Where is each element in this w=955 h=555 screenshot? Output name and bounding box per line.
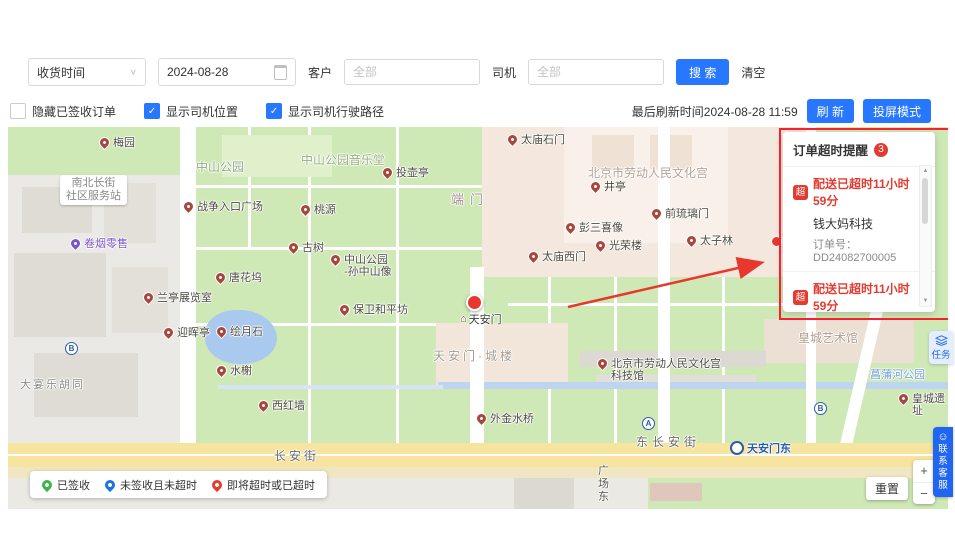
map-poi-label: 前琉璃门 [665,208,709,220]
map-poi: 皇城遗址 [899,393,948,417]
map-pin-icon [564,221,577,234]
map-poi: 唐花坞 [216,272,262,284]
scroll-down-icon[interactable]: ▼ [923,298,929,304]
checkbox-box[interactable]: ✓ [266,103,282,119]
metro-station: 天安门东 [730,440,791,456]
map-poi: 太子林 [687,235,733,247]
filter-checkboxes: 隐藏已签收订单✓显示司机位置✓显示司机行驶路径 [10,103,384,120]
map-poi: 中山公园 -孙中山像 [331,254,392,278]
map-pin-icon [162,326,175,339]
map-area-label: 中山公园 [196,161,244,174]
checkbox-label: 隐藏已签收订单 [32,103,116,120]
map-poi: 投壶亭 [383,167,429,179]
road-letter-badge: B [65,342,78,355]
map-poi-label: 迎晖亭 [177,327,210,339]
map-poi: 卷烟零售 [71,238,128,250]
map-pin-icon [506,133,519,146]
map-poi: 迎晖亭 [164,327,210,339]
map-path [196,247,482,250]
map-pin-icon [685,234,698,247]
order-location-marker[interactable] [466,294,483,311]
date-picker[interactable]: 2024-08-28 [158,58,296,86]
map-poi-label: 北京市劳动人民文化宫 科技馆 [611,358,721,382]
map-area-label: 长安街 [274,450,319,463]
search-toolbar: 收货时间 ∨ 2024-08-28 客户 司机 搜 索 清空 [28,58,765,86]
map-pin-icon [650,207,663,220]
map-poi-label: 太庙石门 [521,134,565,146]
tiananmen-text: 天安门 [469,311,502,327]
map-pin-icon [381,166,394,179]
map-poi: 古树 [289,242,324,254]
legend-item: 未签收且未超时 [105,477,197,493]
map-pin-icon [257,399,270,412]
map-poi: 水榭 [217,365,252,377]
count-badge: 3 [874,143,888,157]
map-area-label: 东长安街 [636,436,700,449]
filter-checkbox[interactable]: ✓显示司机位置 [144,103,238,120]
legend-pin-icon [40,477,54,491]
map-pin-icon [338,303,351,316]
map-river [438,382,948,389]
map-pin-icon [527,250,540,263]
map-poi-label: 桃源 [314,204,336,216]
map-area-label: 北京市劳动人民文化宫 [588,167,708,180]
map-pin-icon [182,200,195,213]
map-poi: 西红墙 [259,400,305,412]
map-poi-label: 梅园 [113,137,135,149]
map-pin-icon [287,241,300,254]
calendar-icon [274,65,287,80]
map-pin-icon [594,239,607,252]
map-pin-icon [214,271,227,284]
refresh-info: 最后刷新时间2024-08-28 11:59 刷 新 投屏模式 [632,99,931,123]
customer-label: 客户 [308,64,332,81]
date-value: 2024-08-28 [167,65,228,79]
landmark-icon: ⌂ [460,313,467,325]
map-poi: 光荣楼 [596,240,642,252]
map-poi: 井亭 [591,181,626,193]
map-block-park-nw [8,127,180,175]
panel-header: 订单超时提醒 3 [783,132,935,167]
map-poi-label: 兰亭展览室 [157,292,212,304]
legend-item: 即将超时或已超时 [212,477,315,493]
map-area-label: 中山公园音乐堂 [301,154,385,167]
legend-label: 即将超时或已超时 [227,477,315,493]
alert-item[interactable]: 超配送已超时11小时59分华润万家（科技园店）2订单号：DD2408270000… [783,272,935,312]
map-pin-icon [69,237,82,250]
map-path [196,185,482,188]
map-area-label: 天安门·城楼 [433,350,515,363]
map-pin-icon [589,180,602,193]
map-poi-label: 西红墙 [272,400,305,412]
legend-pin-icon [210,477,224,491]
map-area-label: 皇城艺术馆 [798,332,858,345]
time-type-select[interactable]: 收货时间 ∨ [28,58,146,86]
map-poi-label: 外金水桥 [490,413,534,425]
legend-label: 已签收 [57,477,90,493]
legend-pin-icon [103,477,117,491]
refresh-button[interactable]: 刷 新 [807,99,854,123]
order-marker-dot[interactable] [771,236,782,247]
map-poi: 外金水桥 [477,413,534,425]
road-letter-badge: B [814,402,827,415]
map-poi-label: 水榭 [230,365,252,377]
map-pin-icon [215,325,228,338]
map-pin-icon [596,357,609,370]
alert-item[interactable]: 超配送已超时11小时59分钱大妈科技订单号：DD24082700005 [783,167,935,272]
task-tab-label: 任务 [931,347,950,361]
alert-list: 超配送已超时11小时59分钱大妈科技订单号：DD24082700005超配送已超… [783,167,935,312]
map-poi-label: 古树 [302,242,324,254]
map-building [592,135,634,169]
map-poi-label: 太庙西门 [542,251,586,263]
map-canvas[interactable]: 梅园战争入口广场桃源投壶亭太庙石门井亭前琉璃门彭三喜像光荣楼太子林太庙西门古树中… [8,127,948,509]
alert-status-text: 配送已超时11小时59分 [813,175,911,209]
map-pin-icon [215,364,228,377]
map-poi-label: 皇城遗址 [912,393,948,417]
checkbox-label: 显示司机行驶路径 [288,103,384,120]
reset-button[interactable]: 重置 [866,477,908,500]
map-poi: 战争入口广场 [184,201,263,213]
customer-service-tab[interactable]: ☺ 联 系 客 服 [933,427,953,497]
zoom-out-button[interactable]: − [913,483,935,505]
panel-title: 订单超时提醒 [793,140,868,159]
overdue-tag-icon: 超 [793,290,808,305]
map-area-label: 广 场 东 [598,465,609,504]
checkbox-box[interactable] [10,103,26,119]
tiananmen-label: ⌂ 天安门 [460,311,502,327]
alert-order-no: 订单号：DD24082700005 [813,236,911,264]
map-building [650,135,692,169]
layers-icon [935,335,948,346]
checkbox-label: 显示司机位置 [166,103,238,120]
map-poi: 桃源 [301,204,336,216]
customer-input[interactable] [344,59,480,85]
map-pin-icon [329,253,342,266]
filter-checkbox[interactable]: 隐藏已签收订单 [10,103,116,120]
last-refresh-text: 最后刷新时间2024-08-28 11:59 [632,103,798,120]
map-pin-icon [897,392,910,405]
map-poi: 兰亭展览室 [144,292,212,304]
map-pin-icon [299,203,312,216]
search-button[interactable]: 搜 索 [676,59,729,85]
zoom-control: + − [913,460,935,504]
legend-item: 已签收 [42,477,90,493]
map-poi-label: 太子林 [700,235,733,247]
map-pin-icon [142,291,155,304]
panel-scrollbar[interactable]: ▲ ▼ [919,165,932,307]
map-building [14,253,106,337]
task-tab[interactable]: 任务 [929,331,953,364]
map-area-label: 端门 [451,193,489,206]
map-poi: 保卫和平坊 [340,304,408,316]
zoom-in-button[interactable]: + [913,460,935,483]
chevron-down-icon: ∨ [130,68,137,77]
alert-store-name: 钱大妈科技 [813,215,911,232]
map-poi: 彭三喜像 [566,222,623,234]
alert-status-row: 超配送已超时11小时59分 [793,175,911,209]
map-poi: 太庙石门 [508,134,565,146]
driver-input[interactable] [528,59,664,85]
metro-station-label: 天安门东 [747,440,791,456]
cast-mode-button[interactable]: 投屏模式 [863,99,931,123]
map-pin-icon [98,136,111,149]
map-road-line [8,454,948,456]
scroll-thumb[interactable] [922,178,928,224]
service-face-icon: ☺ [937,431,948,443]
map-poi-label: 唐花坞 [229,272,262,284]
filter-checkbox[interactable]: ✓显示司机行驶路径 [266,103,384,120]
scroll-up-icon[interactable]: ▲ [923,168,929,174]
alert-status-row: 超配送已超时11小时59分 [793,280,911,312]
map-poi-label: 投壶亭 [396,167,429,179]
map-poi-label: 绘月石 [230,326,263,338]
map-poi: 北京市劳动人民文化宫 科技馆 [598,358,721,382]
map-pin-icon [475,412,488,425]
clear-button[interactable]: 清空 [741,64,765,81]
map-poi-label: 战争入口广场 [197,201,263,213]
map-area-label: 南北长街 社区服务站 [60,175,127,205]
map-building [514,478,574,509]
map-poi: 绘月石 [217,326,263,338]
road-letter-badge: A [642,417,655,430]
legend-label: 未签收且未超时 [120,477,197,493]
map-legend: 已签收未签收且未超时即将超时或已超时 [30,471,327,498]
customer-service-label: 联 系 客 服 [938,444,948,492]
overdue-tag-icon: 超 [793,185,808,200]
map-poi-label: 保卫和平坊 [353,304,408,316]
time-type-value: 收货时间 [37,64,85,81]
overdue-alert-panel: 订单超时提醒 3 超配送已超时11小时59分钱大妈科技订单号：DD2408270… [783,132,935,312]
map-poi-label: 光荣楼 [609,240,642,252]
map-river [218,385,443,389]
map-poi: 太庙西门 [529,251,586,263]
alert-status-text: 配送已超时11小时59分 [813,280,911,312]
map-poi-label: 彭三喜像 [579,222,623,234]
map-area-label: 大宴乐胡同 [20,379,85,392]
filter-row: 隐藏已签收订单✓显示司机位置✓显示司机行驶路径 最后刷新时间2024-08-28… [10,99,931,123]
checkbox-box[interactable]: ✓ [144,103,160,119]
map-building [650,483,702,501]
map-poi-label: 卷烟零售 [84,238,128,250]
map-poi-label: 井亭 [604,181,626,193]
map-poi: 梅园 [100,137,135,149]
map-area-label: 菖蒲河公园 [870,369,925,382]
driver-label: 司机 [492,64,516,81]
map-poi: 前琉璃门 [652,208,709,220]
map-poi-label: 中山公园 -孙中山像 [344,254,392,278]
delivery-map-page: 收货时间 ∨ 2024-08-28 客户 司机 搜 索 清空 隐藏已签收订单✓显… [0,0,955,555]
metro-icon [730,441,744,455]
